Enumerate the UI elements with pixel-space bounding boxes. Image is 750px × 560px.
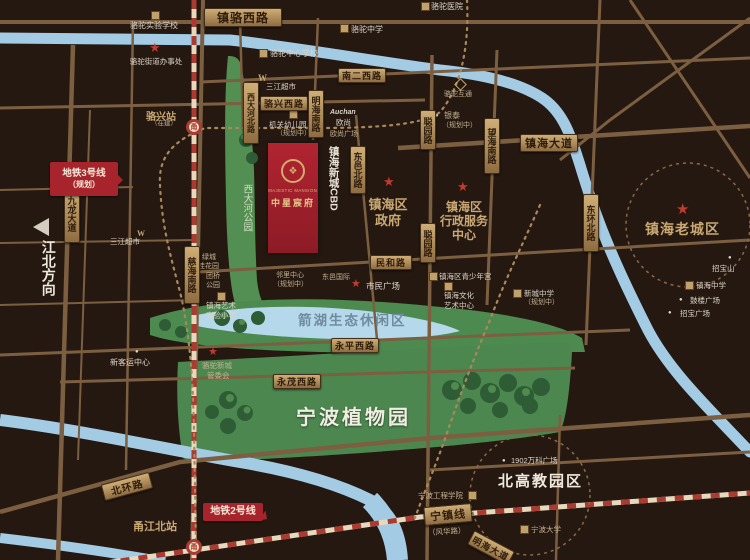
xingzheng-star-icon: ★ — [457, 180, 469, 193]
luoxing-station-note: （在建） — [151, 120, 177, 128]
auchan-logo-text: Auchan — [330, 109, 356, 117]
poi-dot: ● — [135, 349, 139, 355]
yishu-line2: 实验小学 — [206, 311, 236, 320]
tuanqiao-line2: 公园 — [206, 282, 220, 290]
xincheng-zhongxue-label: 新城中学 — [524, 289, 554, 298]
road-network — [0, 0, 750, 560]
project-name-cn: 中星宸府 — [271, 196, 315, 209]
jiangbei-arrow-icon — [24, 218, 49, 236]
project-site-block: ❖ MAJESTIC MANSION 中星宸府 — [268, 143, 318, 253]
metro3-line2: （规划） — [68, 180, 100, 190]
zhenhai-zhongxue-label: 镇海中学 — [696, 281, 726, 290]
metro2-callout: 地铁2号线 — [203, 503, 263, 521]
xingzheng-line3: 中心 — [434, 226, 494, 243]
jiguan-youeryuan-label: 机关幼儿园 — [269, 120, 307, 129]
shimin-guangchang-label: 市民广场 — [366, 281, 400, 291]
dongyi-guoji-label: 东邑国际 — [322, 274, 350, 282]
yintai-note: （规划中） — [442, 122, 477, 130]
yongjiang-station-label: 甬江北站 — [133, 518, 177, 534]
laochengqu-star-icon: ★ — [676, 202, 689, 217]
poi-dot: ● — [679, 297, 683, 303]
metro2-label: 地铁2号线 — [210, 506, 256, 519]
sanjiang-chaoshi-label: 三江超市 — [266, 82, 296, 91]
callout-pointer — [117, 174, 129, 186]
oushang-label: 欧尚 — [336, 118, 351, 127]
hospital-icon — [421, 2, 430, 11]
luotuo-zhongxin-label: 骆驼中心学校 — [270, 49, 318, 59]
xidahe-park-label: 西大河公园 — [241, 184, 252, 262]
oushang-plaza-label: 欧尚广场 — [330, 131, 358, 139]
youth-palace-icon — [429, 272, 438, 281]
cbd-label: 镇海新城CBD — [327, 146, 340, 222]
botanical-garden-label: 宁波植物园 — [296, 406, 411, 430]
yishu-line1: 镇海艺术 — [206, 301, 236, 310]
school-icon — [151, 11, 160, 20]
linli-zhongxin-label: 邻里中心 — [276, 272, 304, 280]
map-base-layer — [0, 0, 750, 560]
school-icon — [259, 49, 268, 58]
road-plaque-minghai-nanlu: 明海南路 — [308, 90, 324, 138]
road-plaque-congyuan-lu-north: 聪园路 — [420, 110, 436, 150]
school-icon — [217, 292, 226, 301]
road-plaque-nan2-xilu: 南二西路 — [338, 68, 386, 83]
tuanqiao-line1: 团桥 — [206, 273, 220, 281]
luotuo-zhongxue-label: 骆驼中学 — [351, 25, 383, 35]
road-plaque-xidahe-beilu: 西大河北路 — [243, 82, 259, 144]
poi-dot: ● — [728, 255, 732, 261]
ninzhen-rail-line — [85, 493, 750, 560]
luotuo-yiyuan-label: 骆驼医院 — [431, 2, 463, 12]
sanjiang-chaoshi-label-2: 三江超市 — [110, 237, 140, 246]
guanweihui-line2: 管委会 — [207, 371, 230, 380]
road-plaque-minhe-lu: 民和路 — [370, 255, 412, 270]
road-plaque-zhenhai-dadao: 镇海大道 — [520, 134, 578, 152]
gulou-guangchang-label: 鼓楼广场 — [690, 296, 720, 305]
beigaojiao-label: 北高教园区 — [498, 473, 583, 491]
ningbo-daxue-label: 宁波大学 — [531, 525, 561, 534]
location-map: ❖ MAJESTIC MANSION 中星宸府 镇骆西路 南二西路 骆兴西路 镇… — [0, 0, 750, 560]
kindergarten-icon — [289, 110, 298, 119]
project-logo-icon: ❖ — [281, 159, 305, 183]
road-plaque-yongping-xilu: 永平西路 — [331, 338, 379, 353]
jiedao-star-icon: ★ — [149, 41, 161, 54]
linli-note: （规划中） — [273, 281, 308, 289]
college-icon — [468, 491, 477, 500]
laochengqu-label: 镇海老城区 — [645, 219, 720, 239]
zhaobaoshan-label: 招宝山 — [712, 264, 735, 273]
road-plaque-luoxing-xilu: 骆兴西路 — [260, 96, 308, 111]
qu-zhengfu-star-icon: ★ — [383, 175, 395, 188]
qingshaoniangong-label: 镇海区青少年宫 — [439, 272, 492, 281]
road-plaque-donghuan-beilu: 东环北路 — [583, 194, 599, 252]
metro-station-icon: 甬 — [186, 539, 202, 555]
culture-center-icon — [444, 282, 453, 291]
school-icon — [340, 24, 349, 33]
road-plaque-zhenluo-xilu: 镇骆西路 — [204, 8, 282, 27]
school-icon — [513, 289, 522, 298]
road-plaque-congyuan-lu-south: 聪园路 — [420, 223, 436, 263]
road-plaque-cihai-nanlu: 慈海南路 — [184, 246, 200, 304]
road-plaque-dongyi-beilu: 东邑北路 — [350, 146, 366, 194]
poi-dot: ● — [668, 310, 672, 316]
luotuo-hutong-label: 骆驼互通 — [444, 91, 472, 99]
metro3-callout: 地铁3号线 （规划） — [50, 162, 118, 196]
jiangbei-direction-label: 江北方向 — [40, 240, 57, 324]
lvcheng-line2: 桂花园 — [198, 263, 219, 271]
lvcheng-line1: 绿城 — [202, 254, 216, 262]
wenhua-line1: 镇海文化 — [444, 291, 474, 300]
luotuo-shiyan-xuexiao-label: 骆驼实验学校 — [118, 21, 190, 31]
qu-zhengfu-line2: 政府 — [363, 210, 413, 229]
youeryuan-note: （规划中） — [276, 130, 311, 138]
university-icon — [520, 525, 529, 534]
jianhu-label: 箭湖生态休闲区 — [298, 309, 407, 329]
guanweihui-star-icon: ★ — [208, 347, 218, 358]
zhaobao-guangchang-label: 招宝广场 — [680, 309, 710, 318]
yintai-label: 银泰 — [444, 111, 460, 121]
metro3-line1: 地铁3号线 — [62, 168, 105, 180]
xincheng-note: （规划中） — [524, 299, 559, 307]
gongcheng-xueyuan-label: 宁波工程学院 — [418, 491, 463, 500]
project-name-en: MAJESTIC MANSION — [269, 188, 318, 193]
poi-dot: ● — [502, 458, 506, 464]
road-plaque-yongmao-xilu: 永茂西路 — [273, 374, 321, 389]
metro-station-icon: 甬 — [186, 119, 202, 135]
luotuo-jiedao-label: 骆驼街道办事处 — [110, 57, 202, 66]
xinkeyun-label: 新客运中心 — [110, 358, 150, 368]
wenhua-line2: 艺术中心 — [444, 301, 474, 310]
river-south-wide — [370, 500, 397, 560]
school-icon — [685, 281, 694, 290]
shimin-star-icon: ★ — [351, 279, 361, 290]
wanke-label: 1902万科广场 — [511, 456, 558, 465]
guanweihui-line1: 骆驼新城 — [202, 361, 232, 370]
road-plaque-wanghai-nanlu: 望海南路 — [484, 118, 500, 174]
